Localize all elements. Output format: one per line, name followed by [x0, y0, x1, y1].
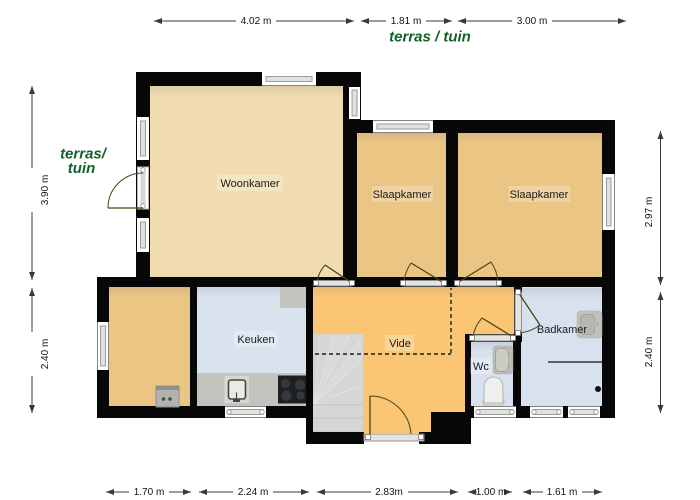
svg-text:Slaapkamer: Slaapkamer: [510, 189, 569, 201]
svg-text:1.61 m: 1.61 m: [547, 487, 578, 498]
svg-text:2.40 m: 2.40 m: [40, 339, 51, 370]
svg-text:Wc: Wc: [473, 361, 489, 373]
svg-text:Vide: Vide: [389, 338, 411, 350]
svg-text:terras / tuin: terras / tuin: [389, 29, 471, 46]
svg-text:1.00 m: 1.00 m: [476, 487, 507, 498]
svg-text:3.90 m: 3.90 m: [40, 175, 51, 206]
svg-text:Slaapkamer: Slaapkamer: [373, 189, 432, 201]
svg-text:Keuken: Keuken: [237, 334, 274, 346]
svg-text:tuin: tuin: [68, 160, 96, 177]
svg-text:1.81 m: 1.81 m: [391, 16, 422, 27]
svg-text:2.97 m: 2.97 m: [644, 197, 655, 228]
svg-text:Badkamer: Badkamer: [537, 324, 587, 336]
svg-text:4.02 m: 4.02 m: [241, 16, 272, 27]
svg-text:2.40 m: 2.40 m: [644, 337, 655, 368]
svg-text:Woonkamer: Woonkamer: [220, 178, 279, 190]
svg-text:3.00 m: 3.00 m: [517, 16, 548, 27]
svg-text:1.70 m: 1.70 m: [134, 487, 165, 498]
svg-text:2.83m: 2.83m: [375, 487, 403, 498]
svg-text:2.24 m: 2.24 m: [238, 487, 269, 498]
